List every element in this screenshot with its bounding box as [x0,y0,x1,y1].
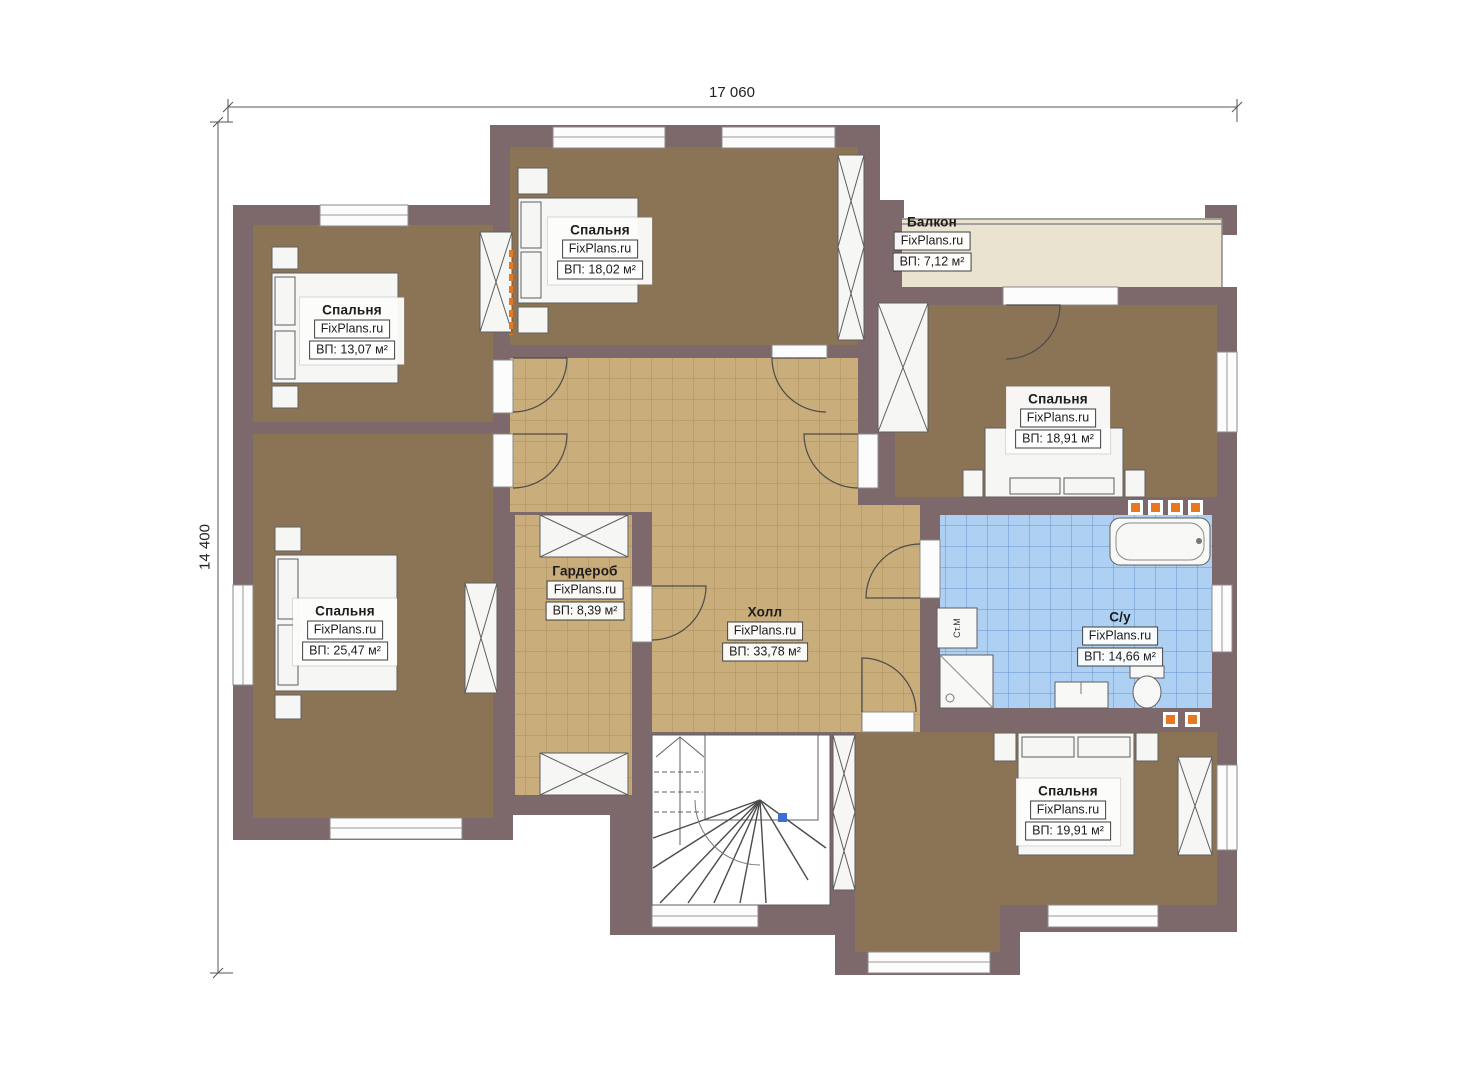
room-brand: FixPlans.ru [1082,627,1159,646]
floor-bedroom-extension [855,905,1000,952]
room-brand: FixPlans.ru [314,320,391,339]
room-label-balcony: Балкон FixPlans.ru ВП: 7,12 м² [893,215,972,272]
room-area: ВП: 18,91 м² [1015,430,1101,449]
room-name: Спальня [570,223,630,238]
room-label-bathroom: С/у FixPlans.ru ВП: 14,66 м² [1077,610,1163,667]
room-brand: FixPlans.ru [727,622,804,641]
room-name: Спальня [1028,392,1088,407]
room-label-bedroom-top-middle: Спальня FixPlans.ru ВП: 18,02 м² [548,218,652,285]
room-area: ВП: 13,07 м² [309,341,395,360]
room-name: Холл [748,605,783,620]
bathtub-drain [1196,538,1202,544]
room-area: ВП: 33,78 м² [722,643,808,662]
door-opening [632,586,652,642]
room-brand: FixPlans.ru [1030,801,1107,820]
room-label-hall: Холл FixPlans.ru ВП: 33,78 м² [722,605,808,662]
washing-machine-label: Ст.М [952,618,962,638]
room-brand: FixPlans.ru [894,232,971,251]
stair-marker [778,813,787,822]
room-name: Спальня [322,303,382,318]
room-name: С/у [1109,610,1131,625]
dimension-width-label: 17 060 [709,84,755,101]
room-label-bedroom-bottom-right: Спальня FixPlans.ru ВП: 19,91 м² [1016,779,1120,846]
room-brand: FixPlans.ru [547,581,624,600]
room-name: Спальня [315,604,375,619]
room-name: Балкон [907,215,957,230]
room-brand: FixPlans.ru [562,240,639,259]
room-area: ВП: 7,12 м² [893,253,972,272]
floor-plan: 17 060 14 400 Спальня FixPlans.ru ВП: 13… [0,0,1474,1080]
room-area: ВП: 14,66 м² [1077,648,1163,667]
room-area: ВП: 25,47 м² [302,642,388,661]
staircase [652,735,830,905]
room-area: ВП: 19,91 м² [1025,822,1111,841]
room-brand: FixPlans.ru [307,621,384,640]
dimension-height-label: 14 400 [197,524,214,570]
room-name: Гардероб [552,564,617,579]
room-label-bedroom-top-left: Спальня FixPlans.ru ВП: 13,07 м² [300,298,404,365]
balcony-door-opening [1003,287,1118,305]
room-area: ВП: 18,02 м² [557,261,643,280]
room-label-bedroom-left: Спальня FixPlans.ru ВП: 25,47 м² [293,599,397,666]
door-opening [920,540,940,598]
room-brand: FixPlans.ru [1020,409,1097,428]
room-area: ВП: 8,39 м² [546,602,625,621]
door-opening [493,360,513,413]
door-opening [862,712,914,732]
door-opening [772,345,827,358]
door-opening [493,434,513,487]
room-name: Спальня [1038,784,1098,799]
toilet [1133,676,1161,708]
room-label-wardrobe: Гардероб FixPlans.ru ВП: 8,39 м² [546,564,625,621]
floor-plan-drawing [0,0,1474,1080]
door-opening [858,434,878,488]
room-label-bedroom-right: Спальня FixPlans.ru ВП: 18,91 м² [1006,387,1110,454]
bathtub [1110,518,1210,565]
